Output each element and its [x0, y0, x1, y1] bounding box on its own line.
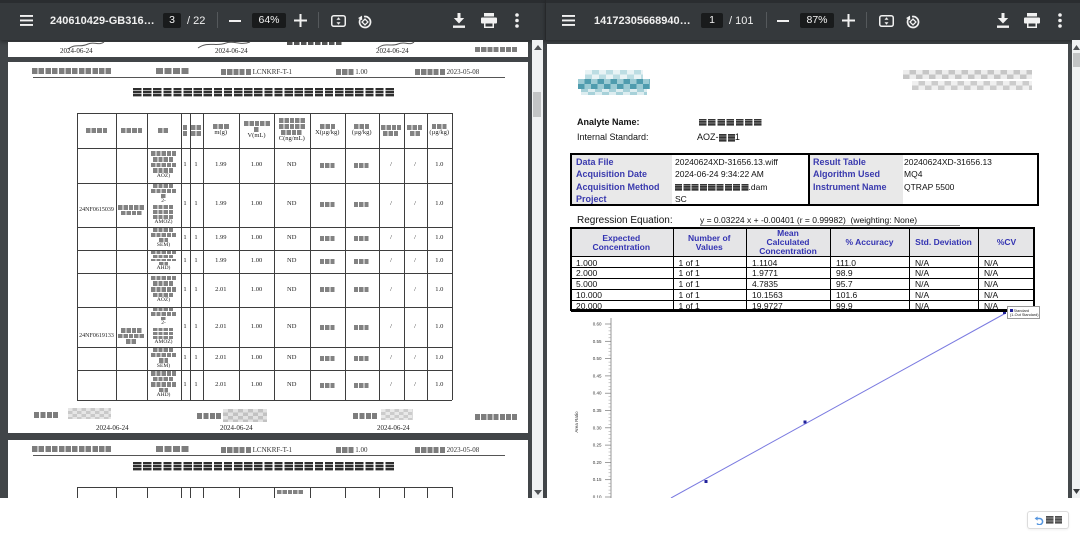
svg-text:0.25: 0.25: [593, 443, 602, 448]
svg-text:0.45: 0.45: [593, 373, 602, 378]
svg-text:0.50: 0.50: [593, 356, 602, 361]
svg-text:0.40: 0.40: [593, 391, 602, 396]
svg-text:0.35: 0.35: [593, 408, 602, 413]
svg-text:0.15: 0.15: [593, 477, 602, 482]
svg-text:0.55: 0.55: [593, 339, 602, 344]
svg-text:0.30: 0.30: [593, 425, 602, 430]
svg-text:Area Ratio: Area Ratio: [574, 411, 579, 433]
svg-text:0.20: 0.20: [593, 460, 602, 465]
svg-text:0.60: 0.60: [593, 322, 602, 327]
